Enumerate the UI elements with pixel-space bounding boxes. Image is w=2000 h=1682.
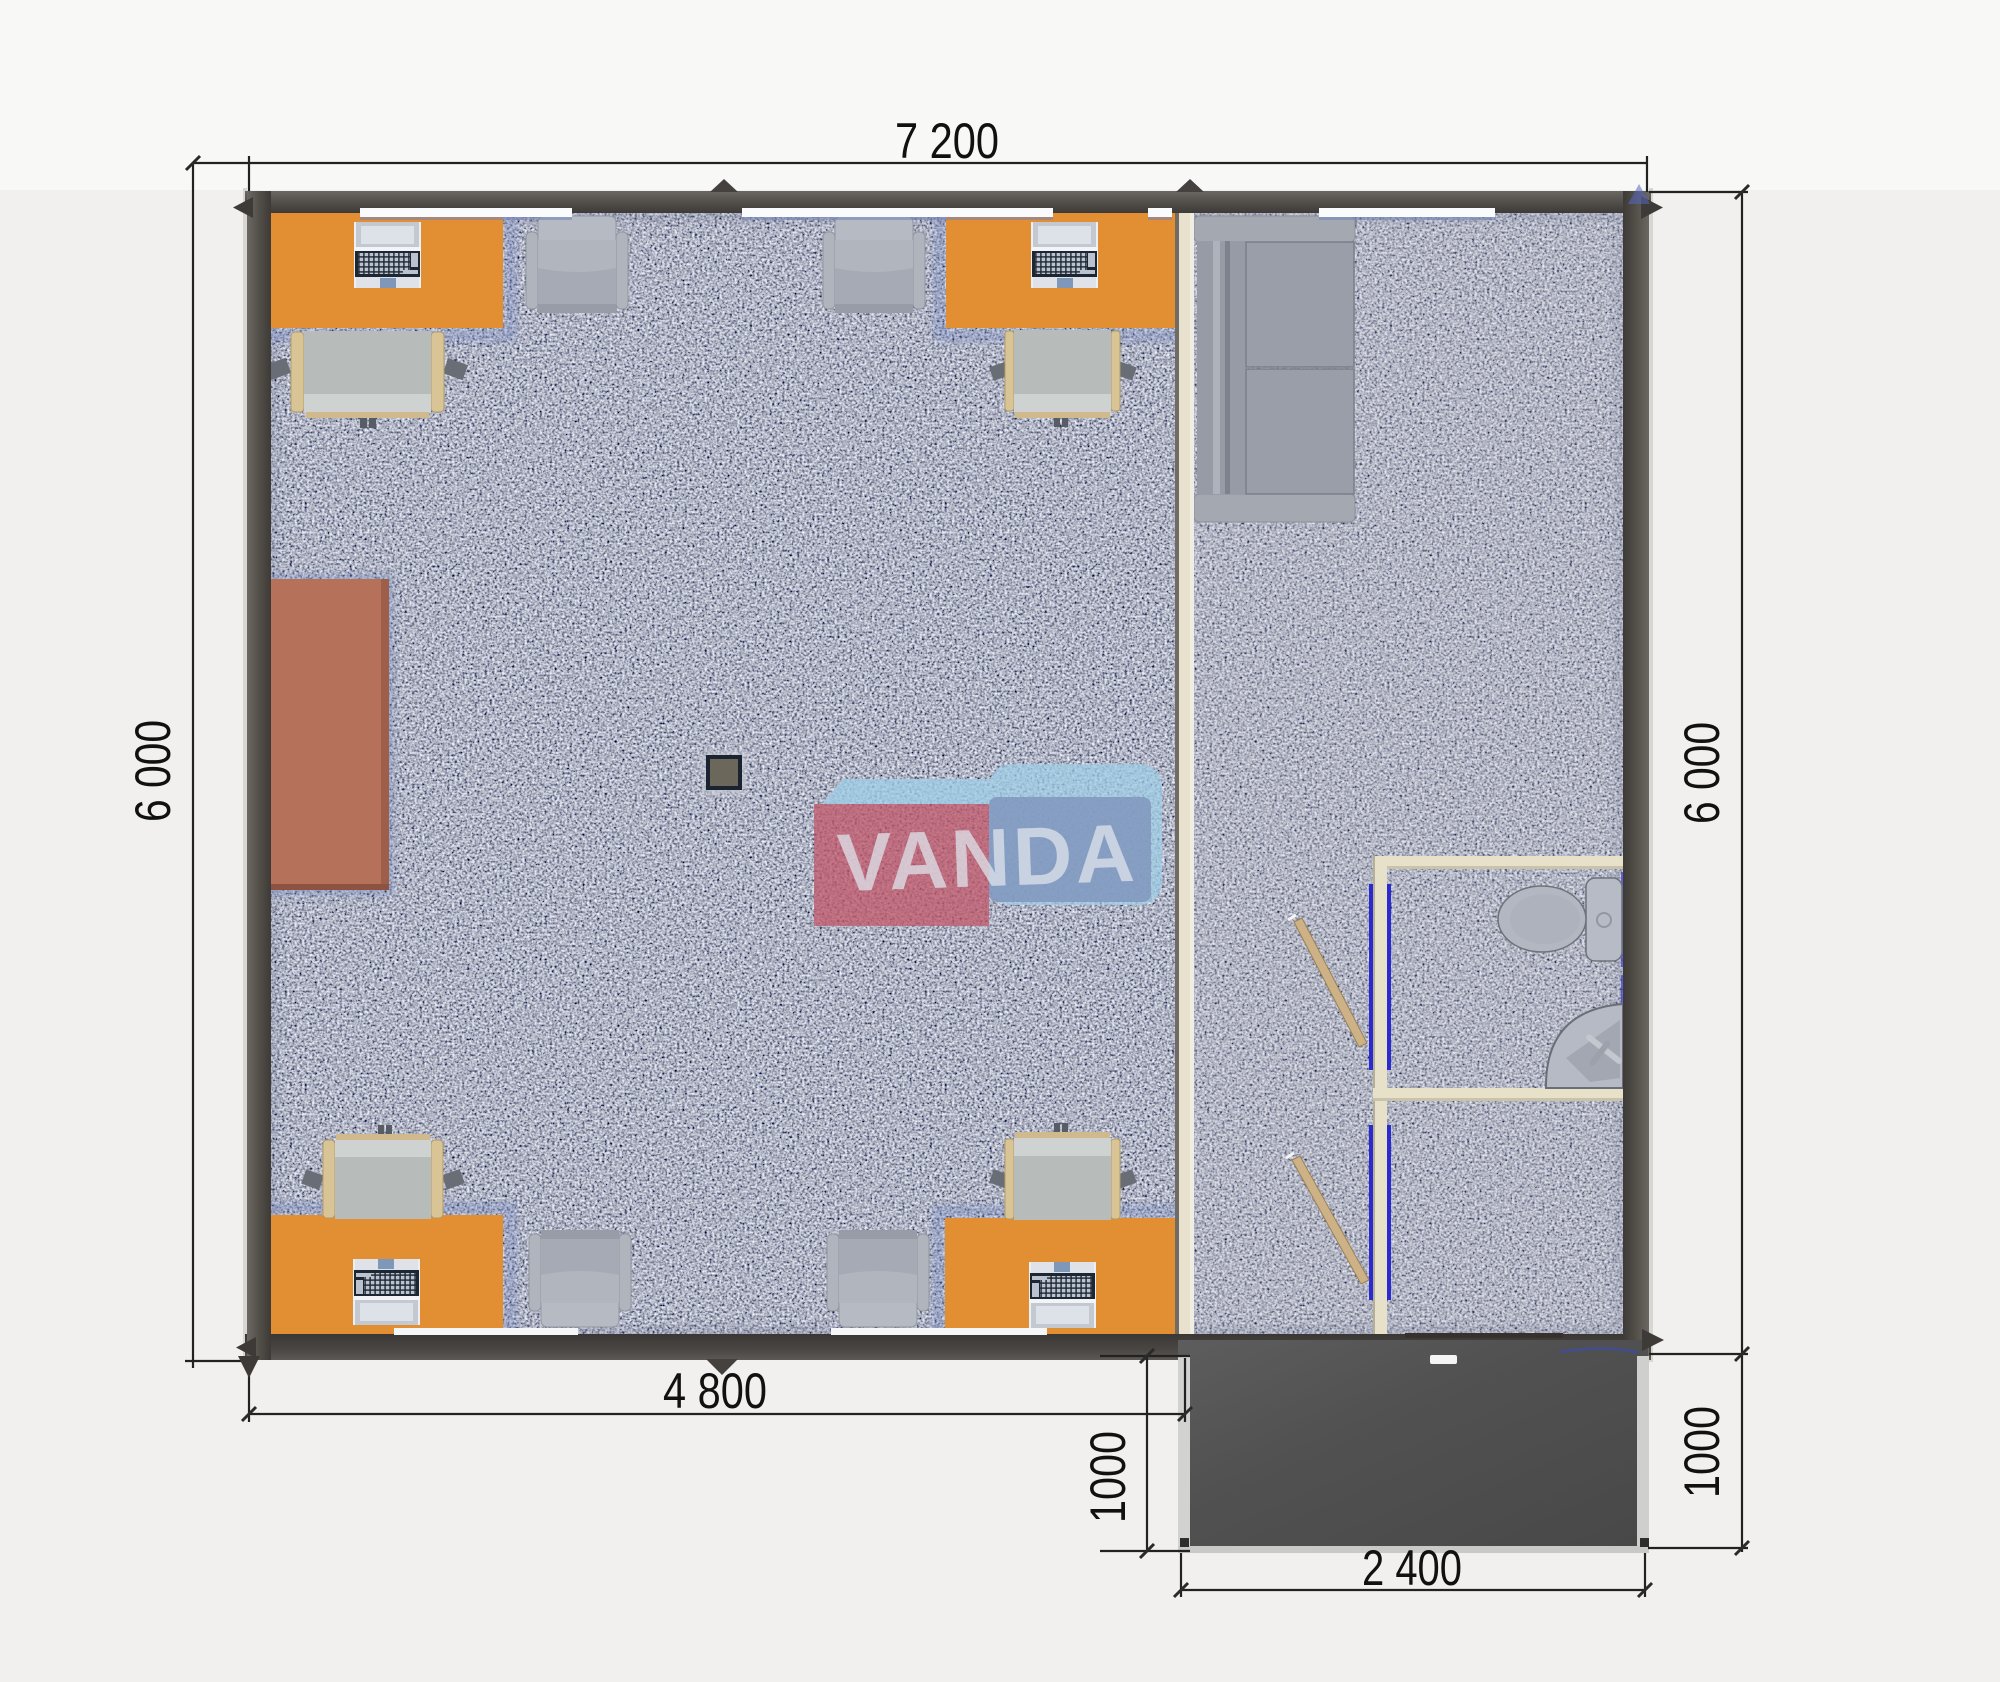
svg-text:1000: 1000	[1080, 1431, 1136, 1523]
svg-text:6 000: 6 000	[125, 720, 181, 822]
svg-text:4 800: 4 800	[663, 1363, 767, 1419]
svg-text:7 200: 7 200	[895, 113, 999, 169]
svg-text:1000: 1000	[1674, 1406, 1730, 1498]
svg-text:6 000: 6 000	[1674, 722, 1730, 824]
svg-text:VANDA: VANDA	[836, 808, 1139, 909]
svg-text:2 400: 2 400	[1362, 1540, 1462, 1596]
